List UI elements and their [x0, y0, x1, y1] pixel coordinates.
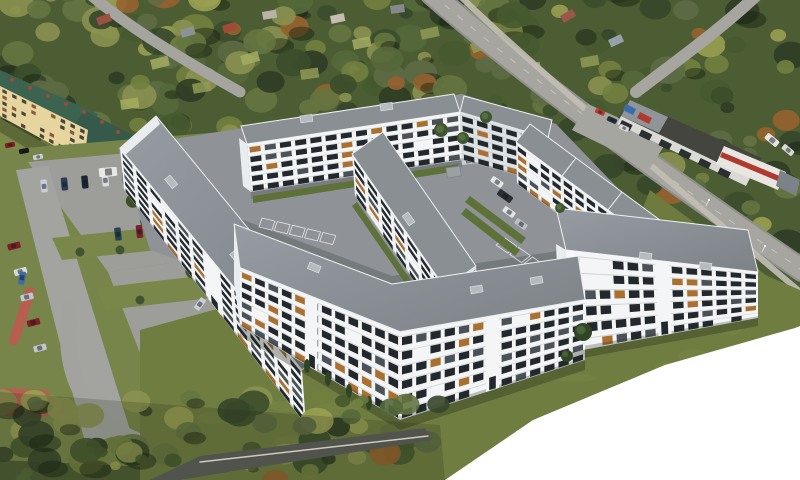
container [446, 166, 461, 178]
aerial-render [0, 0, 800, 480]
scene-canvas [0, 0, 800, 480]
